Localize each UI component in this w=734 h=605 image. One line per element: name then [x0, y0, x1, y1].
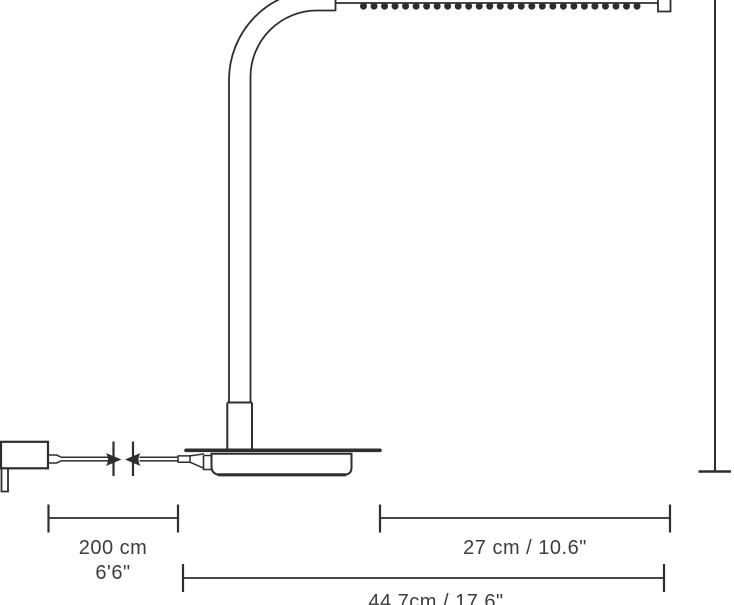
cable-break-marks [106, 442, 141, 477]
height-extent-line [699, 0, 732, 472]
led-dot [392, 3, 399, 10]
led-dot [549, 3, 556, 10]
led-dot [423, 3, 430, 10]
led-dot [560, 3, 567, 10]
led-dot [507, 3, 514, 10]
led-dot [602, 3, 609, 10]
overall-depth-label: 44.7cm / 17.6" [301, 591, 571, 605]
led-dot [486, 3, 493, 10]
dimension-diagram: 200 cm 6'6" 27 cm / 10.6" 44.7cm / 17.6" [0, 0, 734, 605]
led-dot [476, 3, 483, 10]
lamp-base [186, 450, 380, 475]
led-dot [360, 3, 367, 10]
dimension-line-head [380, 505, 670, 533]
head-length-label: 27 cm / 10.6" [390, 537, 660, 560]
led-dot [465, 3, 472, 10]
led-dot [413, 3, 420, 10]
led-dot [528, 3, 535, 10]
led-dot [623, 3, 630, 10]
led-dot [402, 3, 409, 10]
dimension-line-depth [183, 564, 664, 592]
lamp-arm [227, 0, 340, 450]
led-dot [444, 3, 451, 10]
cable-length-metric-label: 200 cm [38, 537, 188, 560]
led-dot [570, 3, 577, 10]
led-dot [581, 3, 588, 10]
led-dot [612, 3, 619, 10]
dimension-line-cable [49, 505, 179, 533]
led-dot [497, 3, 504, 10]
led-dot [591, 3, 598, 10]
power-adapter [1, 442, 61, 492]
lamp-head [336, 0, 671, 12]
led-dot [539, 3, 546, 10]
led-dot [434, 3, 441, 10]
led-dot [381, 3, 388, 10]
cable-length-imperial-label: 6'6" [38, 562, 188, 585]
led-dot [371, 3, 378, 10]
led-dot [634, 3, 641, 10]
led-dot [455, 3, 462, 10]
led-dot [518, 3, 525, 10]
lamp-line-drawing [0, 0, 734, 605]
